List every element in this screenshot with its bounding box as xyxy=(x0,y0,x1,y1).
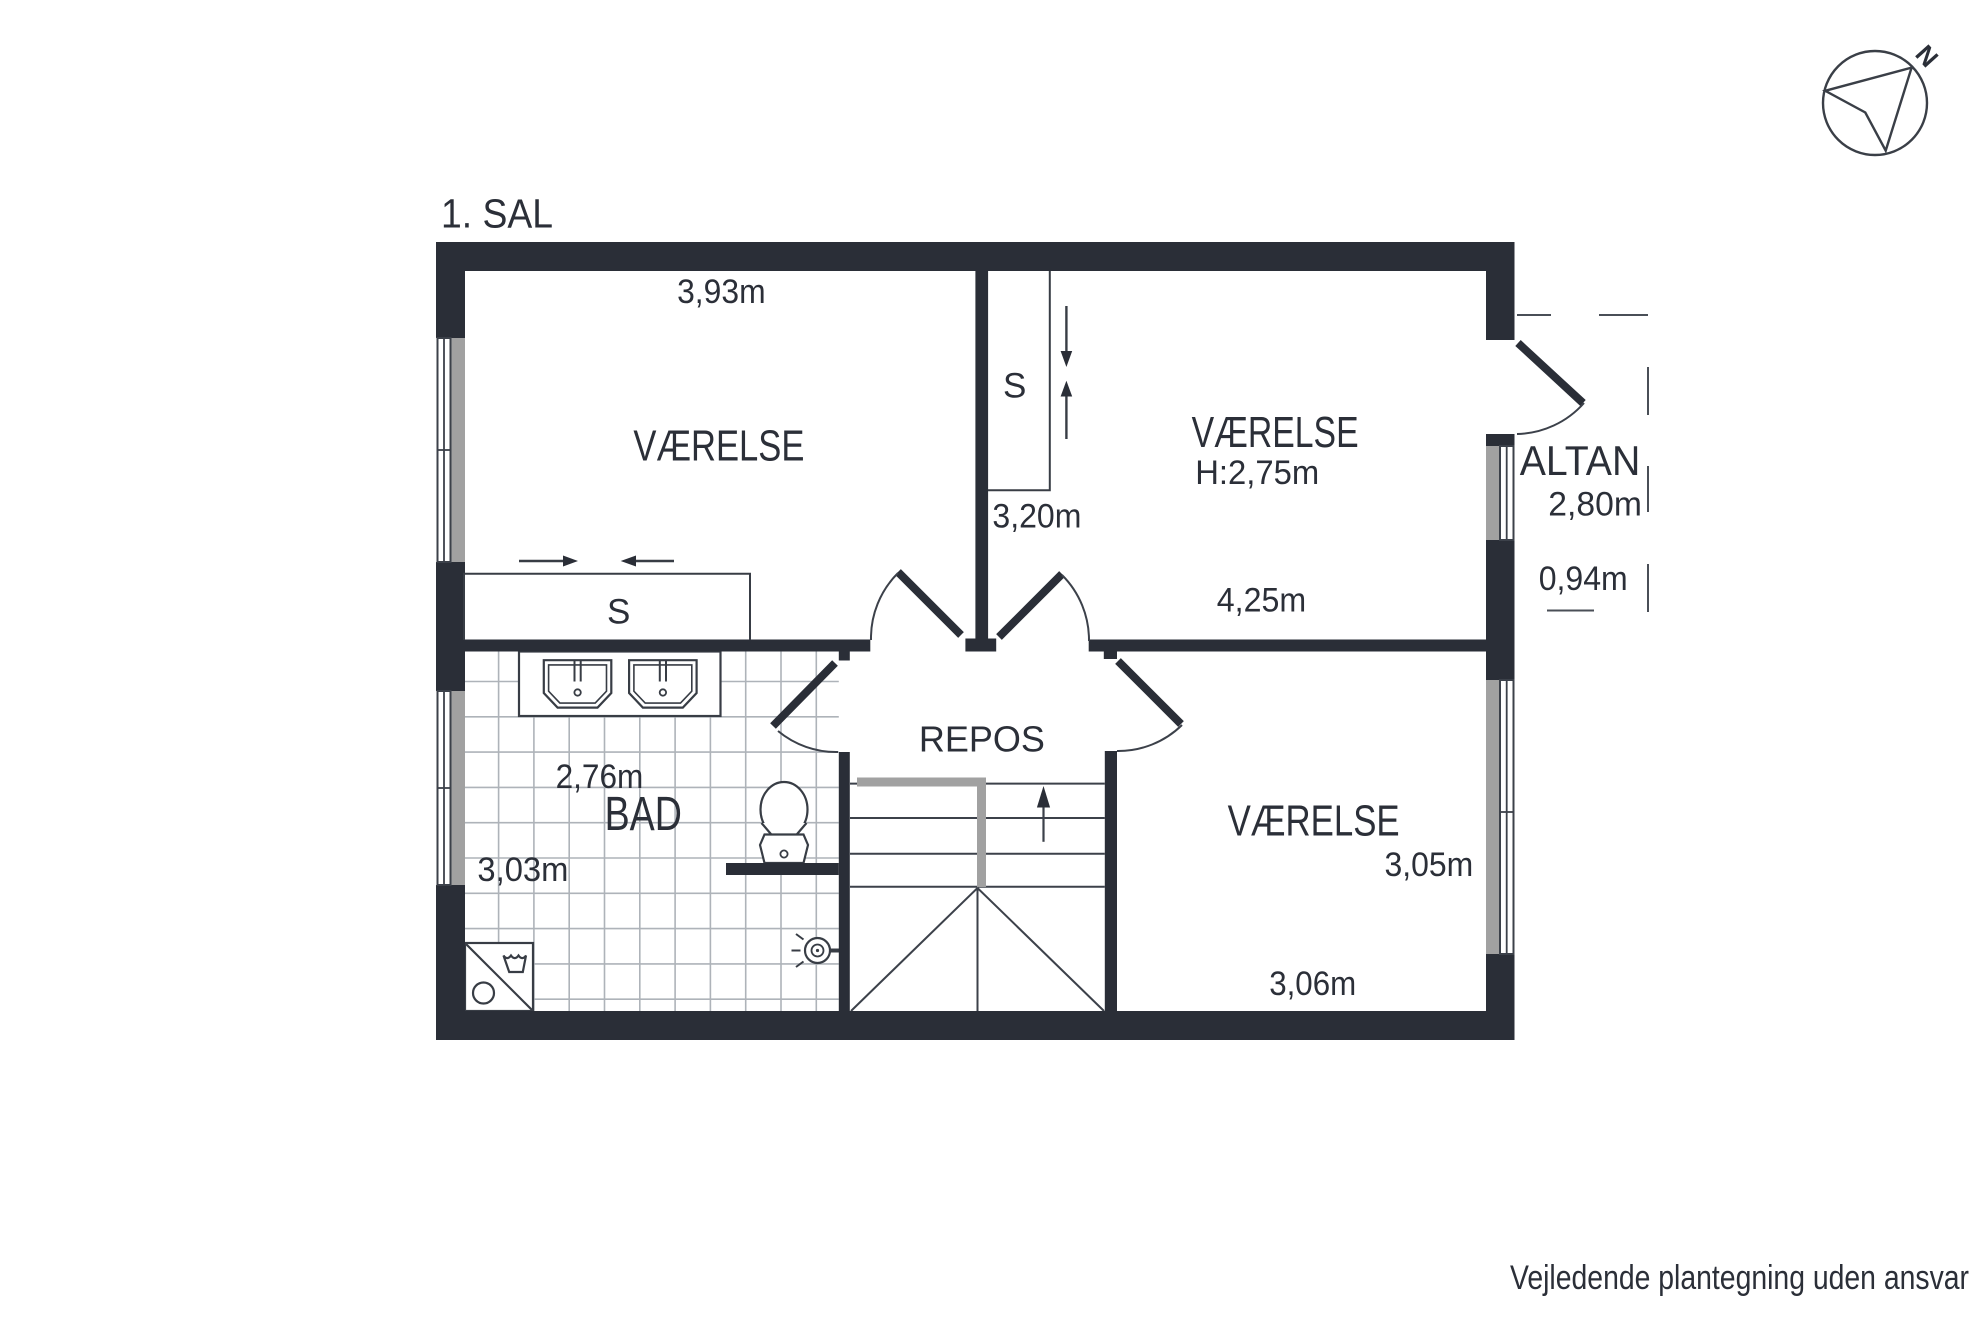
svg-text:3,05m: 3,05m xyxy=(1385,846,1474,884)
svg-text:3,03m: 3,03m xyxy=(477,851,568,889)
svg-text:2,80m: 2,80m xyxy=(1548,486,1642,524)
svg-text:S: S xyxy=(607,593,630,632)
svg-text:VÆRELSE: VÆRELSE xyxy=(633,421,804,470)
svg-text:REPOS: REPOS xyxy=(919,719,1045,760)
svg-text:3,20m: 3,20m xyxy=(992,498,1081,536)
svg-text:Vejledende plantegning uden an: Vejledende plantegning uden ansvar xyxy=(1510,1259,1969,1297)
svg-text:S: S xyxy=(1003,366,1026,405)
svg-text:VÆRELSE: VÆRELSE xyxy=(1192,408,1359,457)
svg-text:H:2,75m: H:2,75m xyxy=(1195,454,1319,492)
svg-text:4,25m: 4,25m xyxy=(1217,582,1306,620)
svg-text:1. SAL: 1. SAL xyxy=(441,191,553,237)
svg-text:3,06m: 3,06m xyxy=(1269,965,1356,1003)
svg-text:3,93m: 3,93m xyxy=(677,273,766,311)
svg-text:2,76m: 2,76m xyxy=(556,758,644,796)
svg-text:0,94m: 0,94m xyxy=(1539,560,1628,598)
svg-text:ALTAN: ALTAN xyxy=(1520,437,1641,484)
svg-text:VÆRELSE: VÆRELSE xyxy=(1228,796,1400,845)
